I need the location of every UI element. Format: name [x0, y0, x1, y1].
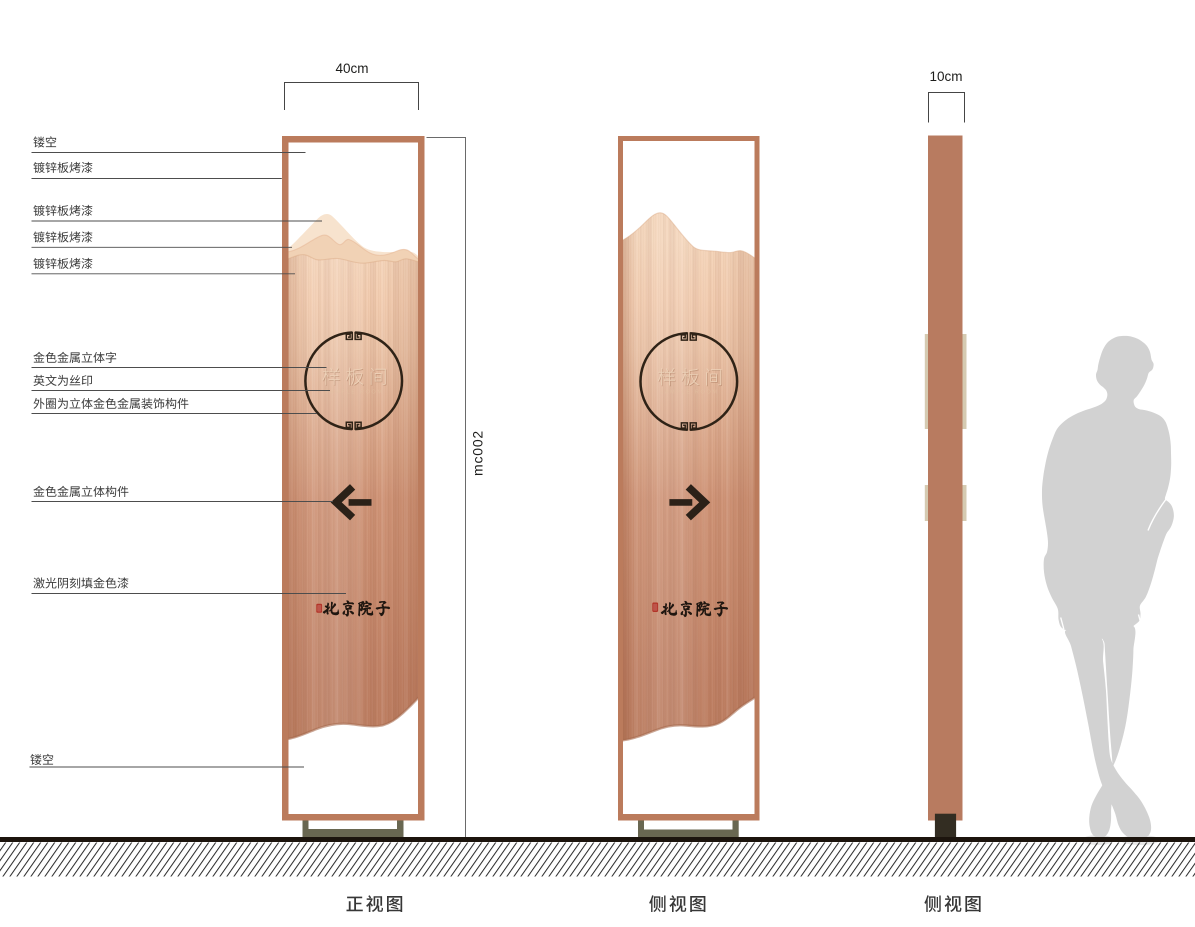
svg-text:40cm: 40cm [335, 61, 368, 76]
svg-text:SAMPLE ROOM: SAMPLE ROOM [324, 390, 383, 396]
svg-text:SAMPLE ROOM: SAMPLE ROOM [659, 390, 718, 396]
svg-text:10cm: 10cm [929, 69, 962, 84]
svg-text:mc002: mc002 [470, 430, 486, 476]
